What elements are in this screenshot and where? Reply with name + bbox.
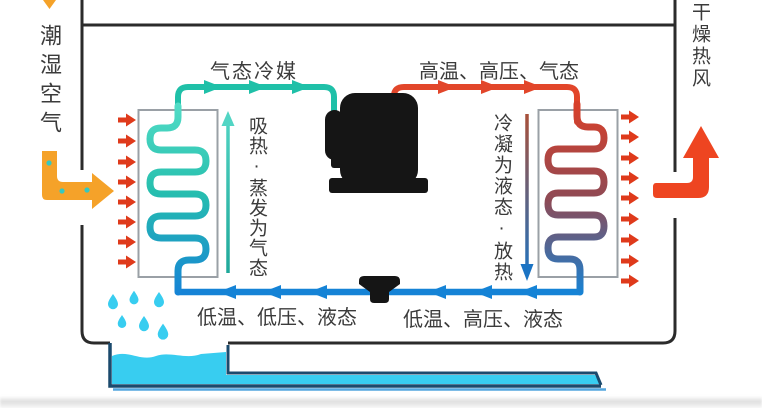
gas-refrigerant-label: 气态冷媒 [210,55,298,84]
schematic-svg [0,0,762,408]
airflow-arrows-evaporator [118,114,136,269]
liquid-low-pressure-label: 低温、低压、液态 [197,301,357,330]
condenser-note-label: 冷凝为液态·放热 [488,113,515,283]
condensate-droplets [108,291,168,340]
compressor [325,93,428,193]
condensate-tray [110,343,606,390]
dry-hot-air-label: 干燥热风 [686,2,713,90]
compressor-body [340,93,418,185]
compressor-outlet-label: 高温、高压、气态 [419,55,579,84]
humid-air-label: 潮湿空气 [33,24,65,140]
cabinet-left-wall-lower [82,225,110,343]
humid-air-inlet-arrow [42,151,114,209]
dry-air-outlet-arrow [653,126,719,198]
heat-pump-diagram: 潮湿空气 干燥热风 气态冷媒 高温、高压、气态 吸热·蒸发为气态 冷凝为液态·放… [0,0,762,408]
compressor-base [329,178,428,193]
bottom-crop-artifact [0,396,762,408]
drain-water [226,375,600,384]
humid-air-down-tip-icon [43,0,56,9]
tray-water [112,352,226,384]
evaporator-note-label: 吸热·蒸发为气态 [243,116,270,278]
airflow-arrows-condenser [621,111,639,288]
evaporator-note-arrow [222,111,235,273]
liquid-high-pressure-label: 低温、高压、液态 [403,303,563,332]
condenser-note-arrow [521,114,534,281]
